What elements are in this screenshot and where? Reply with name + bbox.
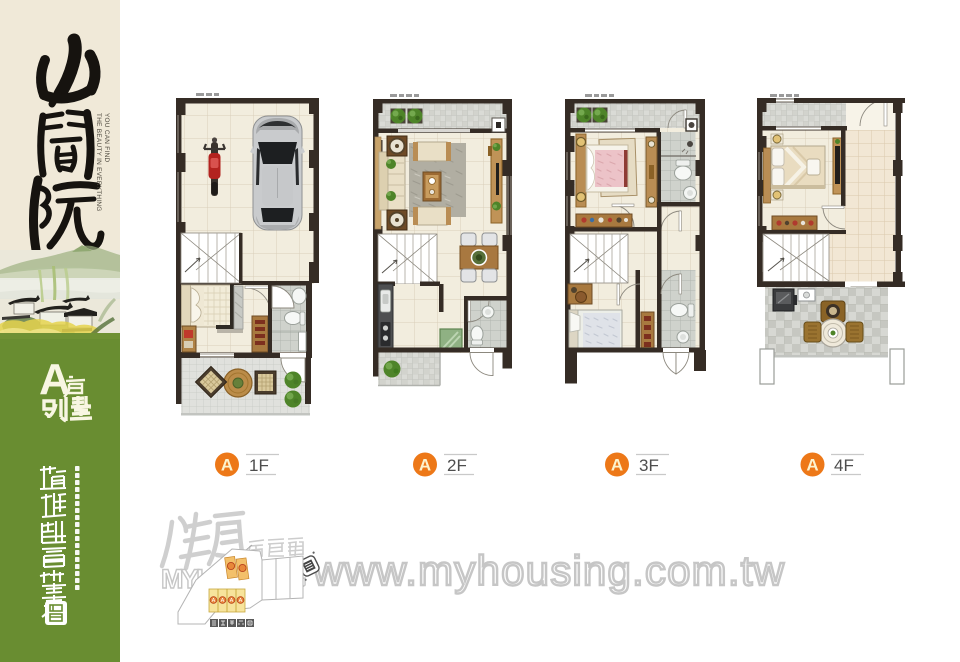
svg-text:YOU CAN FIND: YOU CAN FIND (103, 113, 110, 162)
svg-text:A: A (419, 456, 431, 475)
svg-text:4F: 4F (834, 456, 854, 475)
svg-text:A: A (212, 598, 216, 604)
svg-text:A: A (239, 598, 243, 604)
svg-text:A: A (806, 456, 818, 475)
svg-text:THE BEAUTY IN EVERYTHING: THE BEAUTY IN EVERYTHING (95, 113, 102, 212)
svg-text:www.myhousing.com.tw: www.myhousing.com.tw (312, 547, 785, 594)
svg-text:A: A (611, 456, 623, 475)
svg-text:A: A (221, 598, 225, 604)
svg-text:1F: 1F (249, 456, 269, 475)
svg-text:A: A (230, 598, 234, 604)
svg-text:A: A (221, 456, 233, 475)
svg-text:A: A (39, 355, 71, 404)
svg-text:3F: 3F (639, 456, 659, 475)
svg-text:2F: 2F (447, 456, 467, 475)
